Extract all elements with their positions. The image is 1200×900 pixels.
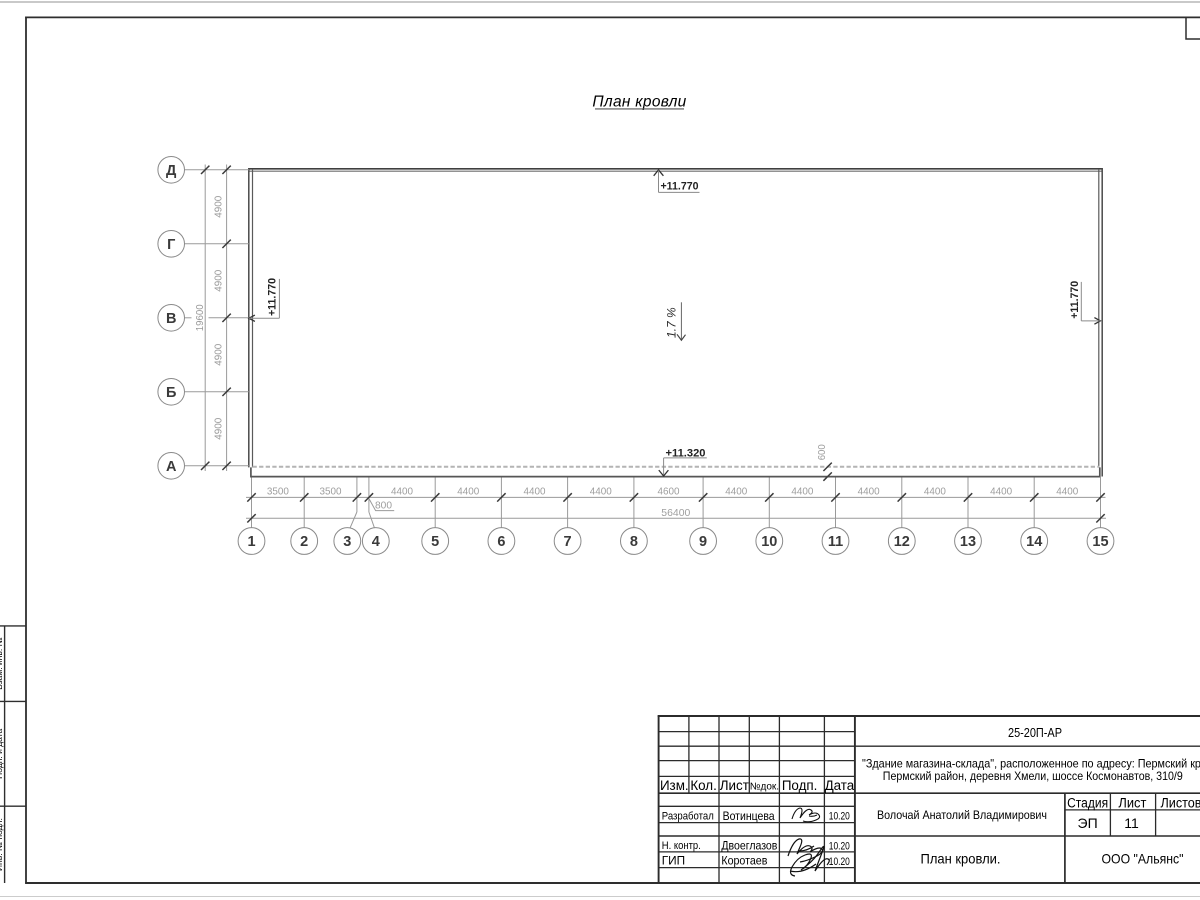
svg-text:План кровли: План кровли [592, 93, 686, 110]
svg-text:15: 15 [1092, 534, 1108, 550]
svg-text:+11.770: +11.770 [1069, 281, 1081, 319]
svg-text:1: 1 [247, 534, 255, 550]
svg-text:800: 800 [375, 499, 392, 511]
svg-text:4600: 4600 [658, 486, 680, 498]
svg-text:4400: 4400 [391, 486, 413, 498]
svg-text:4900: 4900 [212, 344, 224, 366]
svg-text:Взам. инв. №: Взам. инв. № [0, 637, 4, 690]
svg-text:Б: Б [166, 385, 176, 401]
svg-text:Пермский район, деревня Хмели,: Пермский район, деревня Хмели, шоссе Кос… [883, 770, 1183, 783]
svg-text:Вотинцева: Вотинцева [723, 809, 775, 823]
svg-text:6: 6 [497, 534, 505, 550]
svg-text:Разработал: Разработал [662, 810, 714, 822]
svg-text:Г: Г [167, 237, 175, 253]
svg-text:25-20П-АР: 25-20П-АР [1008, 726, 1062, 740]
svg-text:ООО "Альянс": ООО "Альянс" [1102, 852, 1184, 867]
svg-text:Дата: Дата [825, 778, 855, 793]
svg-text:4900: 4900 [212, 270, 224, 292]
svg-text:11: 11 [1124, 815, 1139, 831]
svg-text:9: 9 [699, 534, 707, 550]
svg-text:4400: 4400 [1056, 486, 1078, 498]
svg-text:4900: 4900 [212, 196, 224, 218]
svg-text:4400: 4400 [457, 486, 479, 498]
svg-text:+11.770: +11.770 [267, 278, 279, 316]
svg-text:ЭП: ЭП [1078, 815, 1098, 831]
svg-text:10: 10 [761, 534, 777, 550]
svg-text:8: 8 [630, 534, 638, 550]
svg-text:ГИП: ГИП [662, 853, 685, 867]
svg-text:+11.770: +11.770 [661, 181, 699, 193]
svg-text:№док.: №док. [750, 781, 779, 792]
svg-text:3500: 3500 [320, 486, 342, 498]
svg-text:5: 5 [431, 534, 439, 550]
svg-text:4900: 4900 [212, 418, 224, 440]
svg-text:4400: 4400 [858, 486, 880, 498]
svg-text:Инв. № подл.: Инв. № подл. [0, 818, 4, 871]
svg-text:12: 12 [894, 534, 910, 550]
svg-text:3500: 3500 [267, 486, 289, 498]
svg-text:Листов: Листов [1161, 795, 1200, 810]
svg-text:А: А [166, 459, 177, 475]
svg-text:13: 13 [960, 534, 976, 550]
svg-text:Лист: Лист [1118, 795, 1146, 810]
svg-text:План кровли.: План кровли. [921, 852, 1001, 867]
svg-text:Коротаев: Коротаев [721, 854, 767, 868]
svg-text:4400: 4400 [924, 486, 946, 498]
svg-text:10.20: 10.20 [829, 856, 850, 868]
svg-text:4400: 4400 [590, 486, 612, 498]
svg-text:56400: 56400 [661, 507, 690, 519]
svg-text:4400: 4400 [524, 486, 546, 498]
svg-text:600: 600 [816, 444, 828, 460]
svg-text:14: 14 [1026, 534, 1042, 550]
svg-text:Двоеглазов: Двоеглазов [721, 838, 777, 852]
svg-text:4: 4 [372, 534, 380, 550]
svg-text:Стадия: Стадия [1067, 795, 1108, 810]
svg-text:10.20: 10.20 [829, 840, 850, 852]
svg-text:Лист: Лист [720, 778, 749, 793]
svg-text:1.7 %: 1.7 % [665, 307, 679, 338]
svg-text:Волочай Анатолий Владимирович: Волочай Анатолий Владимирович [877, 808, 1047, 822]
svg-text:Н. контр.: Н. контр. [662, 840, 701, 852]
svg-text:7: 7 [564, 534, 572, 550]
svg-text:19600: 19600 [194, 304, 206, 331]
svg-text:10.20: 10.20 [829, 811, 850, 823]
svg-text:В: В [166, 311, 176, 327]
svg-text:Кол.: Кол. [690, 778, 717, 793]
svg-text:Изм.: Изм. [660, 778, 689, 793]
svg-text:4400: 4400 [725, 486, 747, 498]
svg-text:2: 2 [300, 534, 308, 550]
svg-text:4400: 4400 [990, 486, 1012, 498]
svg-text:Подп.: Подп. [782, 778, 818, 793]
svg-text:Д: Д [166, 163, 177, 179]
svg-text:4400: 4400 [791, 486, 813, 498]
svg-text:Подп. и дата: Подп. и дата [0, 728, 4, 778]
svg-text:11: 11 [828, 534, 843, 550]
svg-text:"Здание магазина-склада", расп: "Здание магазина-склада", расположенное … [862, 757, 1200, 770]
svg-text:3: 3 [343, 534, 351, 550]
